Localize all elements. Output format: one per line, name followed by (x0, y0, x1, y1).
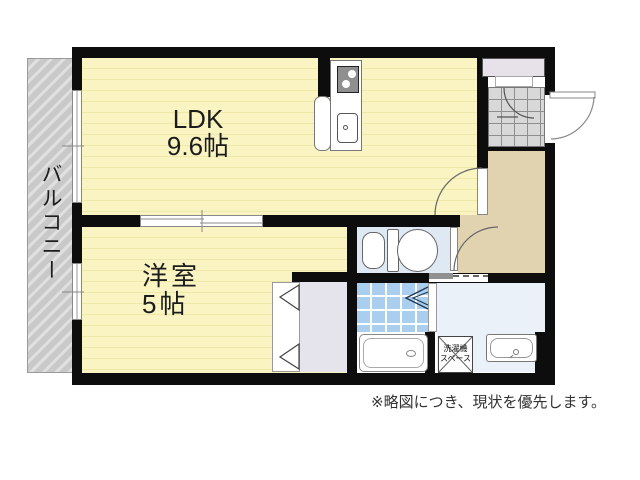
closet-folding-door-track (272, 282, 300, 372)
toilet-bowl-icon (397, 229, 438, 272)
toilet-door (450, 227, 458, 271)
closet (300, 282, 347, 372)
wall-bottom (72, 373, 555, 385)
stove-icon (337, 66, 359, 93)
wall-closet-bath (347, 272, 357, 385)
bath-folding-door-track (428, 283, 437, 332)
ldk-label-group: LDK 9.6帖 (118, 106, 278, 160)
balcony-window-western (72, 263, 82, 320)
laundry-space-line1: 洗濯機 (438, 344, 473, 354)
disclaimer-note: ※略図につき、現状を優先します。 (371, 391, 606, 412)
front-door (550, 92, 595, 98)
laundry-space-line2: スペース (438, 354, 473, 364)
western-room-label: 洋室 (142, 262, 200, 290)
wall-room-divider (82, 215, 460, 227)
washbasin-inner (490, 338, 533, 358)
ldk-label: LDK (118, 106, 278, 133)
bathtub-drain-icon (406, 350, 416, 357)
entrance-tile-area (488, 87, 545, 147)
washroom-sliding-door (429, 274, 488, 282)
kitchen-counter (314, 96, 331, 151)
balcony-window-ldk (72, 90, 82, 203)
laundry-space-label: 洗濯機 スペース (438, 344, 473, 364)
shoe-cabinet (482, 58, 545, 77)
stove-burner-icon (342, 80, 350, 88)
kitchen-sink-icon (337, 113, 358, 143)
ldk-hall-door (477, 168, 488, 215)
bathroom-tile (357, 283, 428, 332)
western-room-size: 5帖 (142, 290, 200, 318)
entrance-step (495, 76, 533, 87)
bathtub-icon (359, 334, 428, 372)
toilet-tank-icon (362, 232, 385, 269)
western-room-label-group: 洋室 5帖 (142, 262, 200, 318)
floor-plan: LDK 9.6帖 洋室 5帖 バルコニー 洗濯機 スペース ※略図につき、現状を… (0, 0, 640, 480)
balcony-label: バルコニー (35, 163, 65, 283)
ldk-size: 9.6帖 (118, 133, 278, 160)
hallway-upper (488, 151, 545, 215)
front-door-swing-arc (551, 97, 594, 139)
washbasin-icon (486, 334, 537, 362)
stove-burner-icon (348, 70, 356, 78)
wall-entrance-edge (488, 147, 545, 151)
sink-faucet-icon (343, 125, 348, 130)
wall-kitchen-stub (318, 47, 330, 97)
room-divider-window (140, 215, 263, 227)
front-door-gap (545, 95, 555, 143)
